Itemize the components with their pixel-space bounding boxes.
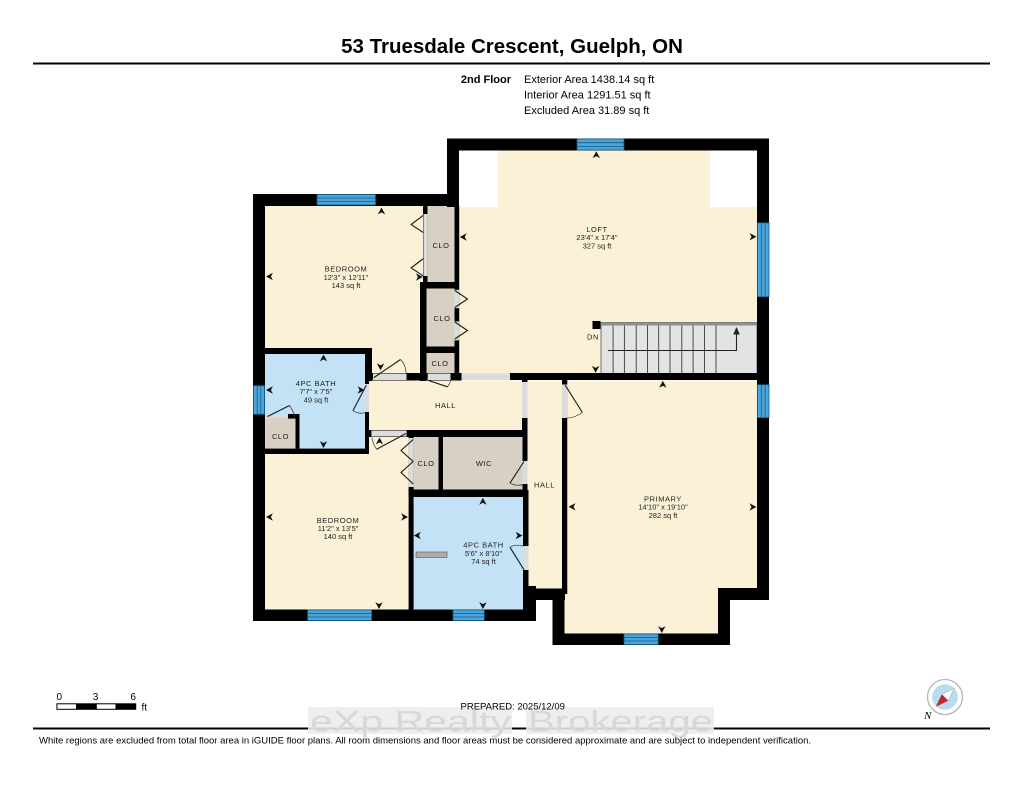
svg-text:282 sq ft: 282 sq ft: [649, 511, 679, 520]
svg-text:143 sq ft: 143 sq ft: [332, 281, 362, 290]
svg-text:N: N: [923, 711, 932, 722]
svg-text:Exterior Area 1438.14 sq ft: Exterior Area 1438.14 sq ft: [524, 74, 654, 86]
svg-text:CLO: CLO: [272, 432, 289, 441]
svg-text:74 sq ft: 74 sq ft: [471, 557, 497, 566]
svg-text:Interior Area 1291.51 sq ft: Interior Area 1291.51 sq ft: [524, 90, 651, 102]
svg-text:2nd Floor: 2nd Floor: [461, 74, 512, 86]
svg-text:WIC: WIC: [476, 459, 492, 468]
svg-text:CLO: CLO: [432, 241, 449, 250]
svg-text:DN: DN: [587, 332, 599, 341]
svg-text:ft: ft: [142, 703, 148, 714]
svg-text:Excluded Area 31.89 sq ft: Excluded Area 31.89 sq ft: [524, 105, 649, 117]
svg-text:HALL: HALL: [534, 480, 555, 489]
svg-text:3: 3: [93, 692, 99, 703]
svg-text:140 sq ft: 140 sq ft: [324, 532, 354, 541]
svg-text:6: 6: [130, 692, 136, 703]
svg-text:BEDROOM: BEDROOM: [325, 264, 368, 273]
svg-text:327 sq ft: 327 sq ft: [583, 241, 613, 250]
svg-text:CLO: CLO: [431, 359, 448, 368]
svg-text:0: 0: [57, 692, 63, 703]
svg-text:CLO: CLO: [433, 314, 450, 323]
svg-text:PREPARED: 2025/12/09: PREPARED: 2025/12/09: [461, 702, 565, 713]
svg-text:White regions are excluded fro: White regions are excluded from total fl…: [39, 736, 811, 747]
svg-text:53 Truesdale Crescent, Guelph,: 53 Truesdale Crescent, Guelph, ON: [341, 35, 683, 58]
svg-text:HALL: HALL: [435, 401, 456, 410]
svg-text:CLO: CLO: [417, 459, 434, 468]
svg-text:49 sq ft: 49 sq ft: [304, 396, 330, 405]
